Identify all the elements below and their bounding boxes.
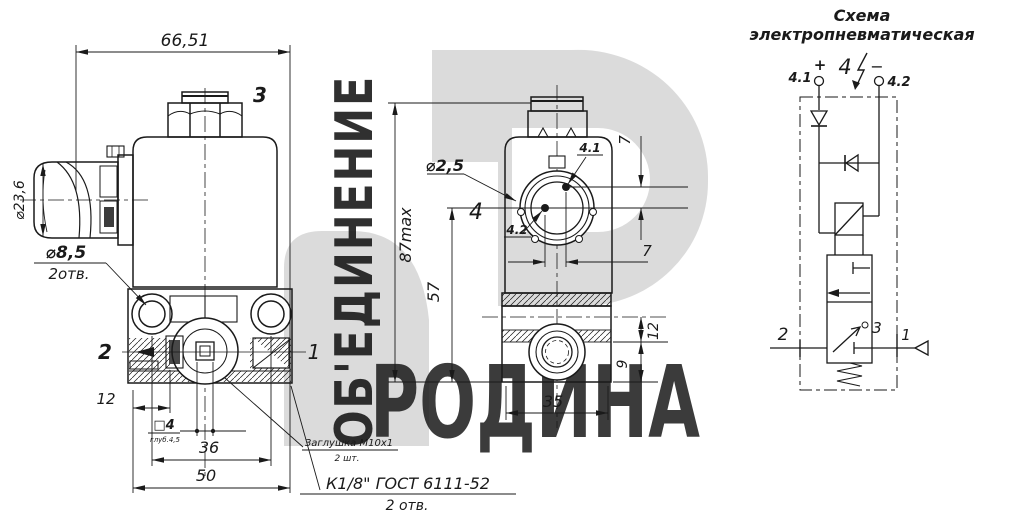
thread-note: К1/8" ГОСТ 6111-52 [326,474,490,493]
dim-port-bottom-9: 9 [615,359,631,368]
dim-port-top-12: 12 [646,322,662,340]
connector-position-label: 4 [469,200,483,225]
valve-symbol [827,255,872,363]
schematic-port2-label: 2 [778,325,789,345]
solenoid-symbol [835,203,863,255]
square-drive-note: глуб.4,5 [150,436,181,444]
drawing-canvas: ОБ'ЕДИНЕНИЕ РОДИНА [0,0,1024,528]
pin2-label: 4.2 [505,223,527,237]
schematic-port1-label: 1 [901,326,911,344]
port-1-label: 1 [308,340,321,364]
schematic-boundary [800,97,897,390]
dim-base-50: 50 [196,466,216,485]
port-2-label: 2 [98,340,112,364]
pin-4-1 [562,183,570,191]
manifold-block-side [128,289,292,384]
minus-sign: − [870,57,883,76]
square-drive-label: □4 [153,418,174,433]
thread-qty: 2 отв. [386,498,429,514]
diode-icon [811,111,827,126]
dim-pin-horizontal-7: 7 [642,242,652,260]
dim-span-36: 36 [199,438,219,457]
schematic-pin1-label: 4.1 [787,71,811,86]
schematic-coil-label: 4 [838,55,851,79]
dim-base-width-35: 35 [543,392,563,411]
dim-height-87max: 87max [396,207,415,263]
terminal-4-1 [815,77,824,86]
holes-qty-label: 2отв. [48,265,89,283]
pin-dia-label: ⌀2,5 [426,156,464,175]
pin1-label: 4.1 [578,141,600,155]
dim-width-6651: 66,51 [161,31,210,51]
plus-sign: + [814,56,827,74]
schematic-port3-label: 3 [872,319,882,337]
dim-pin-vertical-7: 7 [616,135,634,145]
dim-offset-12: 12 [96,390,115,408]
exhaust-icon [915,341,928,355]
terminal-4-2 [875,77,884,86]
lightning-icon [852,53,867,90]
plug-qty: 2 шт. [335,454,360,464]
schematic-title-line2: электропневматическая [749,25,974,44]
holes-dia-label: ⌀8,5 [46,243,86,263]
dim-connector-dia: ⌀23,6 [12,180,28,220]
spring-icon [837,363,862,386]
dim-height-57: 57 [424,281,443,302]
schematic-pin2-label: 4.2 [886,75,910,90]
plug-note: Заглушка М10х1 [305,438,393,449]
coil-position-label: 3 [253,83,267,107]
schematic-title-line1: Схема [834,6,891,25]
